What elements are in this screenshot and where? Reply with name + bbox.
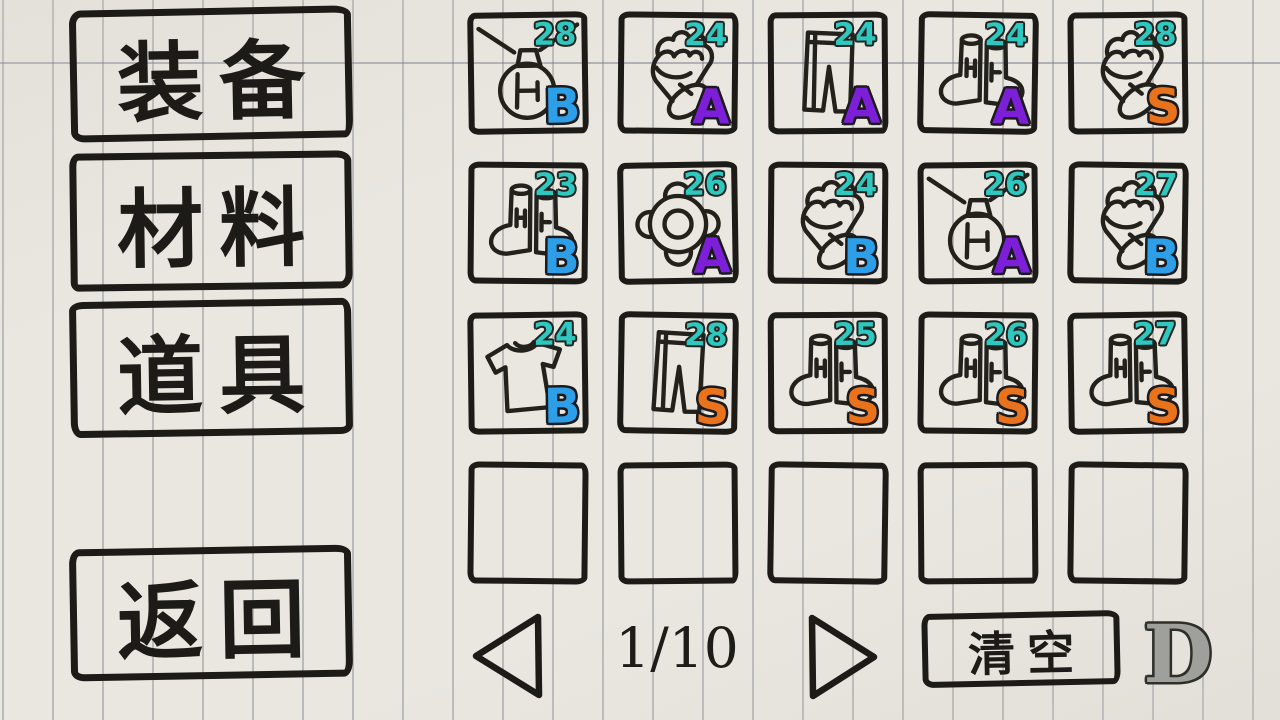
inventory-slot-empty[interactable] [617,461,738,584]
inventory-slot-empty[interactable] [467,461,588,584]
item-level: 23 [534,168,577,202]
inventory-slot[interactable]: 24A [617,11,738,134]
rank-d-badge[interactable]: D [1146,608,1210,700]
item-grade: A [843,81,881,134]
inventory-slot[interactable]: 24A [917,11,1039,135]
item-grade: A [992,81,1030,134]
item-grade: A [692,81,730,134]
item-grade: S [1146,81,1181,134]
inventory-slot-empty[interactable] [767,461,889,585]
inventory-slot[interactable]: 28S [617,311,739,435]
item-level: 24 [684,18,727,53]
clear-button-label: 清空 [955,613,1086,685]
inventory-screen: 装备 材料 道具 返回 28B24A24A24A28S23B26A24B26A2… [0,0,1280,720]
item-level: 28 [1133,17,1176,52]
item-grade: S [995,381,1030,434]
item-level: 25 [834,318,877,352]
item-grade: A [993,231,1031,284]
prev-page-button[interactable] [466,610,548,702]
inventory-slot[interactable]: 24A [768,12,889,135]
item-level: 24 [834,168,877,202]
item-level: 24 [833,18,876,52]
item-level: 26 [984,318,1027,353]
inventory-slot-empty[interactable] [918,462,1039,585]
item-grade: S [1146,380,1181,433]
item-level: 27 [1133,317,1177,352]
inventory-slot[interactable]: 24B [768,162,889,285]
clear-button[interactable]: 清空 [921,610,1121,688]
item-level: 28 [533,17,577,52]
back-button-label: 返回 [100,549,322,678]
arrow-right-icon [804,612,882,702]
back-button[interactable]: 返回 [69,545,353,682]
inventory-slot[interactable]: 26A [617,161,739,285]
inventory-slot[interactable]: 24B [467,311,588,434]
item-grade: B [1143,231,1180,284]
tab-materials[interactable]: 材料 [69,150,353,291]
tab-equipment-label: 装备 [100,9,322,138]
item-level: 28 [684,318,728,353]
item-grade: S [694,381,729,434]
tab-items[interactable]: 道具 [69,298,353,438]
tab-items-label: 道具 [100,304,322,432]
item-grade: B [543,231,580,284]
item-grade: B [843,231,880,284]
inventory-slot[interactable]: 25S [768,312,889,435]
tab-materials-label: 材料 [100,157,322,285]
inventory-slot[interactable]: 27S [1067,311,1189,435]
next-page-button[interactable] [804,612,882,702]
item-level: 24 [533,317,577,352]
item-grade: A [693,230,731,283]
item-grade: B [544,80,581,133]
item-level: 24 [984,18,1028,53]
inventory-slot[interactable]: 28S [1067,11,1188,134]
inventory-slot[interactable]: 27B [1067,161,1189,285]
arrow-left-icon [466,610,548,702]
item-grade: S [845,381,880,434]
inventory-slot[interactable]: 26A [917,161,1038,284]
inventory-slot[interactable]: 23B [467,161,588,284]
item-level: 27 [1134,168,1178,203]
inventory-grid: 28B24A24A24A28S23B26A24B26A27B24B28S25S2… [468,12,1188,584]
item-grade: B [544,381,581,434]
page-indicator: 1/10 [592,616,762,680]
tab-equipment[interactable]: 装备 [69,5,353,142]
item-level: 26 [683,167,727,202]
inventory-slot[interactable]: 28B [467,11,589,135]
inventory-slot[interactable]: 26S [917,311,1038,434]
item-level: 26 [983,168,1026,202]
inventory-slot-empty[interactable] [1067,461,1188,584]
